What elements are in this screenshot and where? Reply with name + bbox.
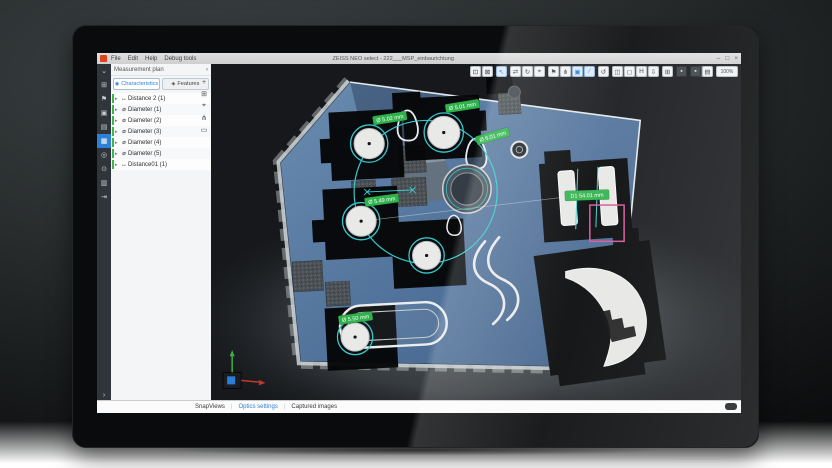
features-icon: ◈	[172, 81, 176, 87]
tree-row-diameter-1[interactable]: ▸ ⌀ Diameter (1)	[111, 104, 211, 115]
sidebar-item-report[interactable]: ⊙	[97, 162, 111, 176]
svg-text:D1 54.01 mm: D1 54.01 mm	[570, 193, 604, 200]
panel-collapse-icon[interactable]: ›	[206, 67, 208, 73]
refresh-button[interactable]: ↺	[598, 66, 609, 77]
tab-captured-images[interactable]: Captured images	[289, 404, 339, 410]
tab-optics-settings[interactable]: Optics settings	[236, 404, 279, 410]
bore-1[interactable]	[351, 125, 388, 162]
tree-item-label: Diameter (1)	[128, 107, 161, 113]
sidebar-item-export[interactable]: ⇥	[97, 190, 111, 204]
tree-row-diameter-4[interactable]: ▸ ⌀ Diameter (4)	[111, 137, 211, 148]
tab-characteristics-label: Characteristics	[121, 81, 158, 87]
menu-bar: FileEditHelpDebug tools	[111, 56, 203, 62]
shading-b-button[interactable]: ▪	[690, 66, 701, 77]
bore-5[interactable]	[337, 319, 372, 354]
sidebar-item-evaluate[interactable]: ◎	[97, 148, 111, 162]
close-icon[interactable]: ×	[734, 55, 738, 62]
app-logo-icon	[100, 55, 107, 62]
sidebar-item-plan[interactable]: ▤	[97, 120, 111, 134]
grid-button[interactable]: ⊞	[662, 66, 673, 77]
tab-features-label: Features	[177, 81, 199, 87]
tab-characteristics[interactable]: ◉ Characteristics	[113, 78, 160, 90]
nodes-button[interactable]: ⋔	[560, 66, 571, 77]
sidebar-expand-icon[interactable]: ›	[97, 390, 111, 400]
monitor: FileEditHelpDebug tools ZEISS NEO select…	[72, 25, 759, 448]
pan-button[interactable]: ⇄	[510, 66, 521, 77]
separator: |	[231, 404, 233, 410]
status-bar-green	[112, 94, 114, 103]
add-icon[interactable]: +	[199, 77, 210, 87]
measurement-plan-panel: Measurement plan › ◉ Characteristics ◈ F…	[111, 64, 212, 401]
diameter-icon: ⌀	[120, 106, 128, 113]
tree-item-label: Diameter (2)	[128, 118, 161, 124]
export-view-button[interactable]: ⇩	[648, 66, 659, 77]
viewport-3d[interactable]: ⊡ ⊠ ↖ ⇄ ↻ ⌖ ⚑ ⋔ ▣ ∕ ↺	[211, 64, 741, 401]
tree-row-distance01[interactable]: ▸ ↔ Distance01 (1)	[111, 159, 211, 170]
sidebar-item-alignment[interactable]: ▣	[97, 106, 111, 120]
window-controls: – □ ×	[717, 53, 738, 64]
snapshot-doc-button[interactable]: ▤	[702, 66, 713, 77]
draw-button[interactable]: ∕	[584, 66, 595, 77]
panel-tabs: ◉ Characteristics ◈ Features	[111, 76, 211, 91]
status-bar-green	[112, 127, 114, 136]
distance-icon: ↔	[120, 162, 128, 168]
distance-icon: ↔	[120, 96, 128, 102]
duplicate-icon[interactable]: ⊞	[199, 89, 210, 99]
region-button[interactable]: ▣	[572, 66, 583, 77]
z-axis-face	[227, 376, 235, 384]
display-icon[interactable]: ▭	[199, 125, 210, 135]
maximize-icon[interactable]: □	[725, 55, 729, 62]
central-boss	[443, 165, 491, 213]
diameter-icon: ⌀	[120, 139, 128, 146]
hierarchy-icon[interactable]: ⋔	[199, 113, 210, 123]
flag-button[interactable]: ⚑	[548, 66, 559, 77]
tree-item-label: Diameter (5)	[128, 151, 161, 157]
separator: |	[284, 404, 286, 410]
view-h-button[interactable]: H	[636, 66, 647, 77]
minimize-icon[interactable]: –	[717, 55, 721, 62]
scene-3d[interactable]: Ø 5.02 mm Ø 5.01 mm Ø 6.01 mm Ø 5.49 mm	[211, 64, 741, 401]
status-bar-green	[112, 116, 114, 125]
menu-debug-tools[interactable]: Debug tools	[164, 56, 196, 62]
menu-edit[interactable]: Edit	[128, 56, 138, 62]
tree-row-diameter-2[interactable]: ▸ ⌀ Diameter (2)	[111, 115, 211, 126]
tree-item-label: Distance 2 (1)	[128, 96, 165, 102]
shading-a-button[interactable]: ▪	[676, 66, 687, 77]
menu-file[interactable]: File	[111, 56, 121, 62]
panel-title: Measurement plan	[114, 67, 164, 73]
bore-2[interactable]	[424, 113, 463, 152]
sidebar: ⌄ ⊞ ⚑ ▣ ▤ ▦ ◎ ⊙ ▥ ⇥ ›	[97, 64, 111, 401]
sidebar-item-probe[interactable]: ⚑	[97, 92, 111, 106]
zoom-selection-button[interactable]: ⊠	[482, 66, 493, 77]
diameter-icon: ⌀	[120, 128, 128, 135]
bottom-bar-handle[interactable]	[725, 403, 737, 410]
target-icon[interactable]: ⌖	[199, 101, 210, 111]
tree-item-label: Diameter (4)	[128, 140, 161, 146]
zoom-level-display[interactable]: 100%	[716, 66, 738, 77]
view-front-button[interactable]: ◫	[612, 66, 623, 77]
window-title: ZEISS NEO select - 222___MSP_einbauricht…	[332, 56, 454, 62]
tree-row-distance-2[interactable]: ▸ ↔ Distance 2 (1)	[111, 93, 211, 104]
sidebar-item-documents[interactable]: ▥	[97, 176, 111, 190]
tree-item-label: Diameter (3)	[128, 129, 161, 135]
characteristics-icon: ◉	[115, 81, 119, 87]
bore-4[interactable]	[409, 238, 444, 273]
plan-tool-strip: + ⊞ ⌖ ⋔ ▭	[198, 77, 210, 135]
measurement-label[interactable]: D1 54.01 mm	[565, 189, 610, 201]
select-cursor-button[interactable]: ↖	[496, 66, 507, 77]
zoom-tool-button[interactable]: ⌖	[534, 66, 545, 77]
characteristics-tree: ▸ ↔ Distance 2 (1) ▸ ⌀ Diameter (1) ▸ ⌀ …	[111, 93, 211, 170]
collapse-icon[interactable]: ⌄	[97, 64, 111, 78]
status-bar-green	[112, 105, 114, 114]
application-window: FileEditHelpDebug tools ZEISS NEO select…	[97, 53, 741, 413]
diameter-icon: ⌀	[120, 150, 128, 157]
diameter-icon: ⌀	[120, 117, 128, 124]
bottom-bar: SnapViews | Optics settings | Captured i…	[97, 400, 741, 413]
orbit-button[interactable]: ↻	[522, 66, 533, 77]
view-top-button[interactable]: ◻	[624, 66, 635, 77]
fit-view-button[interactable]: ⊡	[470, 66, 481, 77]
status-bar-green	[112, 160, 114, 169]
sidebar-item-measure[interactable]: ▦	[97, 134, 111, 148]
bore-3[interactable]	[342, 203, 379, 240]
viewport-toolbar: ⊡ ⊠ ↖ ⇄ ↻ ⌖ ⚑ ⋔ ▣ ∕ ↺	[470, 66, 738, 77]
tree-row-diameter-3[interactable]: ▸ ⌀ Diameter (3)	[111, 126, 211, 137]
status-bar-green	[112, 138, 114, 147]
tree-item-label: Distance01 (1)	[128, 162, 167, 168]
menu-help[interactable]: Help	[145, 56, 157, 62]
tree-row-diameter-5[interactable]: ▸ ⌀ Diameter (5)	[111, 148, 211, 159]
tab-snapviews[interactable]: SnapViews	[193, 404, 227, 410]
sidebar-item-project[interactable]: ⊞	[97, 78, 111, 92]
status-bar-green	[112, 149, 114, 158]
